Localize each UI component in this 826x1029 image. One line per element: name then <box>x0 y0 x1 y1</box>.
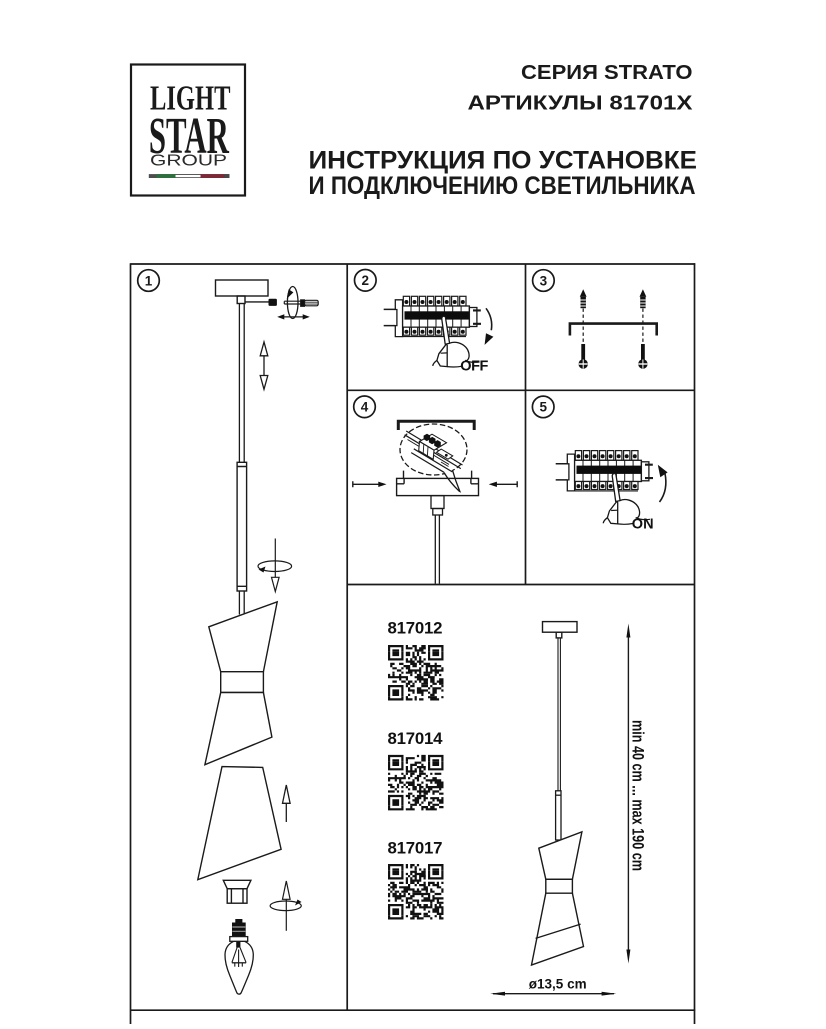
svg-text:3: 3 <box>540 273 548 288</box>
svg-text:4: 4 <box>361 400 369 415</box>
svg-text:OFF: OFF <box>460 358 488 374</box>
svg-text:АРТИКУЛЫ 81701X: АРТИКУЛЫ 81701X <box>468 93 694 115</box>
svg-text:ø13,5 cm: ø13,5 cm <box>529 977 587 992</box>
svg-text:817017: 817017 <box>388 838 443 857</box>
svg-text:817014: 817014 <box>388 729 444 748</box>
svg-text:ON: ON <box>632 517 654 533</box>
svg-text:ИНСТРУКЦИЯ ПО УСТАНОВКЕ: ИНСТРУКЦИЯ ПО УСТАНОВКЕ <box>309 146 698 174</box>
svg-text:GROUP: GROUP <box>150 152 227 169</box>
svg-text:1: 1 <box>145 273 153 288</box>
svg-text:817012: 817012 <box>388 618 443 637</box>
svg-text:5: 5 <box>539 400 547 415</box>
svg-text:СЕРИЯ STRATO: СЕРИЯ STRATO <box>521 62 693 84</box>
svg-text:min 40 cm ... max 190 cm: min 40 cm ... max 190 cm <box>628 720 647 871</box>
svg-text:И ПОДКЛЮЧЕНИЮ СВЕТИЛЬНИКА: И ПОДКЛЮЧЕНИЮ СВЕТИЛЬНИКА <box>309 172 696 200</box>
svg-text:2: 2 <box>362 273 370 288</box>
